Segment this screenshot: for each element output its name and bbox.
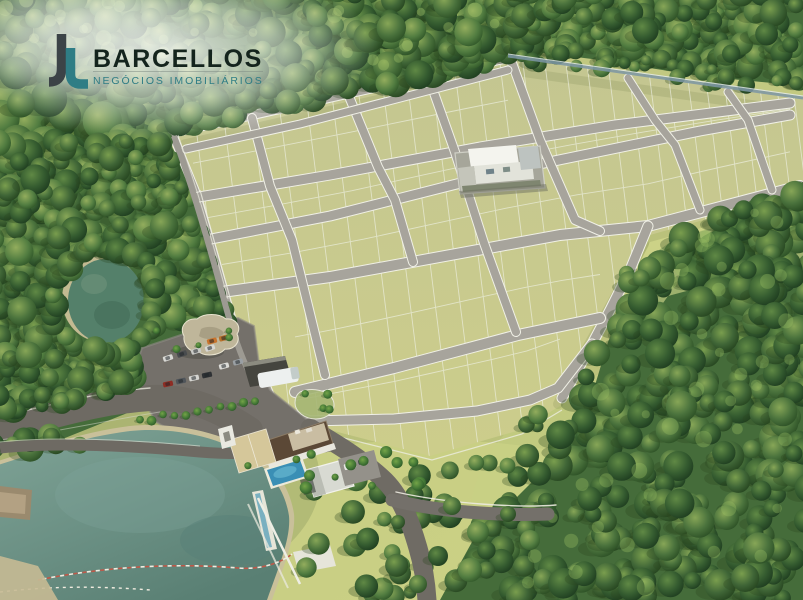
svg-text:BARCELLOS: BARCELLOS xyxy=(93,45,263,73)
svg-text:NEGÓCIOS IMOBILIÁRIOS: NEGÓCIOS IMOBILIÁRIOS xyxy=(93,74,264,87)
